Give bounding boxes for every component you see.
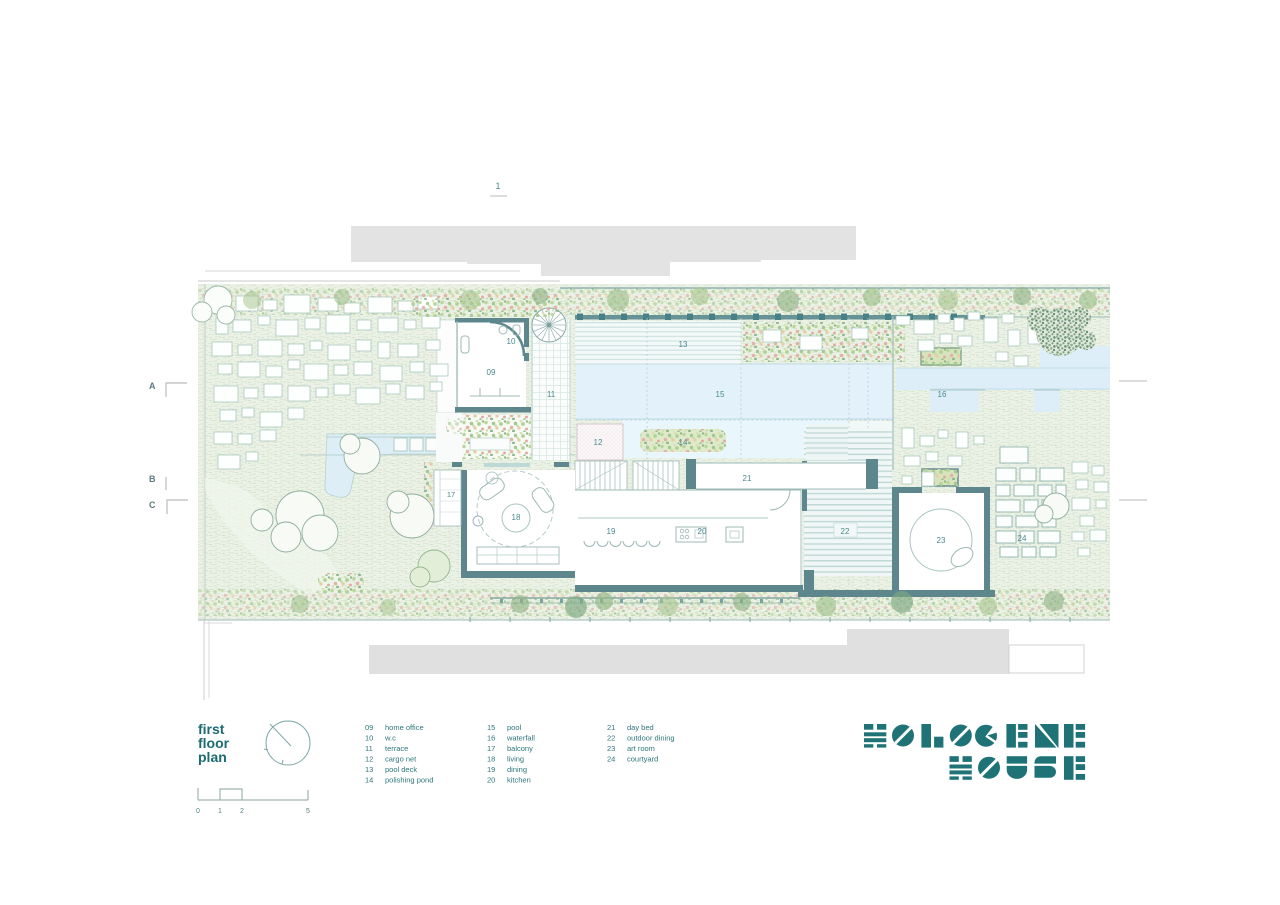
svg-text:1: 1 — [495, 181, 500, 191]
svg-text:09: 09 — [487, 368, 496, 377]
svg-text:C: C — [149, 500, 156, 510]
svg-text:terrace: terrace — [385, 744, 408, 753]
svg-text:14: 14 — [679, 438, 688, 447]
svg-text:dining: dining — [507, 765, 527, 774]
svg-text:w.c: w.c — [384, 734, 396, 743]
svg-text:polishing pond: polishing pond — [385, 776, 433, 785]
svg-text:20: 20 — [698, 527, 707, 536]
svg-text:14: 14 — [365, 776, 373, 785]
svg-text:12: 12 — [594, 438, 603, 447]
svg-text:day bed: day bed — [627, 723, 654, 732]
svg-text:21: 21 — [743, 474, 752, 483]
svg-text:kitchen: kitchen — [507, 776, 531, 785]
svg-text:12: 12 — [365, 755, 373, 764]
svg-text:18: 18 — [487, 755, 495, 764]
svg-text:23: 23 — [607, 744, 615, 753]
svg-text:pool: pool — [507, 723, 522, 732]
svg-text:pool deck: pool deck — [385, 765, 417, 774]
svg-text:art room: art room — [627, 744, 655, 753]
svg-text:0: 0 — [196, 808, 200, 815]
svg-text:19: 19 — [607, 527, 616, 536]
svg-text:21: 21 — [607, 723, 615, 732]
svg-text:16: 16 — [487, 734, 495, 743]
svg-text:outdoor dining: outdoor dining — [627, 734, 675, 743]
svg-text:balcony: balcony — [507, 744, 533, 753]
svg-text:11: 11 — [365, 744, 373, 753]
svg-text:24: 24 — [607, 755, 615, 764]
svg-text:10: 10 — [365, 734, 373, 743]
svg-text:1: 1 — [218, 808, 222, 815]
svg-text:11: 11 — [547, 390, 556, 399]
svg-text:20: 20 — [487, 776, 495, 785]
svg-text:16: 16 — [938, 390, 947, 399]
svg-text:22: 22 — [607, 734, 615, 743]
svg-text:2: 2 — [240, 808, 244, 815]
svg-text:courtyard: courtyard — [627, 755, 658, 764]
svg-text:B: B — [149, 474, 156, 484]
svg-text:13: 13 — [679, 340, 688, 349]
svg-text:18: 18 — [512, 513, 521, 522]
svg-text:09: 09 — [365, 723, 373, 732]
svg-text:17: 17 — [487, 744, 495, 753]
svg-text:15: 15 — [716, 390, 725, 399]
svg-text:19: 19 — [487, 765, 495, 774]
svg-text:10: 10 — [507, 337, 516, 346]
svg-text:living: living — [507, 755, 524, 764]
svg-text:home office: home office — [385, 723, 424, 732]
svg-text:24: 24 — [1018, 534, 1027, 543]
svg-text:A: A — [149, 381, 156, 391]
svg-text:17: 17 — [447, 490, 455, 499]
svg-text:waterfall: waterfall — [506, 734, 535, 743]
svg-text:23: 23 — [937, 536, 946, 545]
svg-text:22: 22 — [841, 527, 850, 536]
svg-text:13: 13 — [365, 765, 373, 774]
svg-text:cargo net: cargo net — [385, 755, 417, 764]
svg-text:plan: plan — [198, 749, 227, 765]
svg-text:5: 5 — [306, 808, 310, 815]
svg-text:15: 15 — [487, 723, 495, 732]
